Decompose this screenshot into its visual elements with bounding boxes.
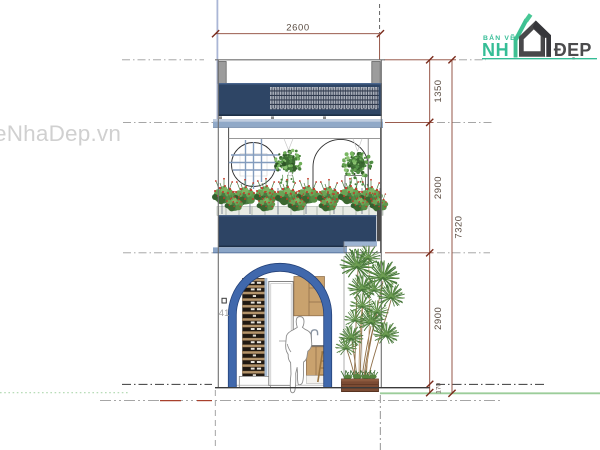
svg-text:7320: 7320: [454, 215, 465, 238]
svg-text:ĐẸP: ĐẸP: [554, 40, 592, 60]
svg-text:2900: 2900: [433, 307, 444, 330]
svg-text:170: 170: [436, 382, 443, 393]
svg-text:1350: 1350: [433, 79, 444, 102]
svg-text:eNhaDep.vn: eNhaDep.vn: [0, 121, 121, 146]
svg-text:2900: 2900: [433, 176, 444, 199]
svg-text:2600: 2600: [286, 23, 310, 34]
svg-text:NH: NH: [482, 40, 509, 60]
svg-text:41: 41: [219, 308, 230, 319]
